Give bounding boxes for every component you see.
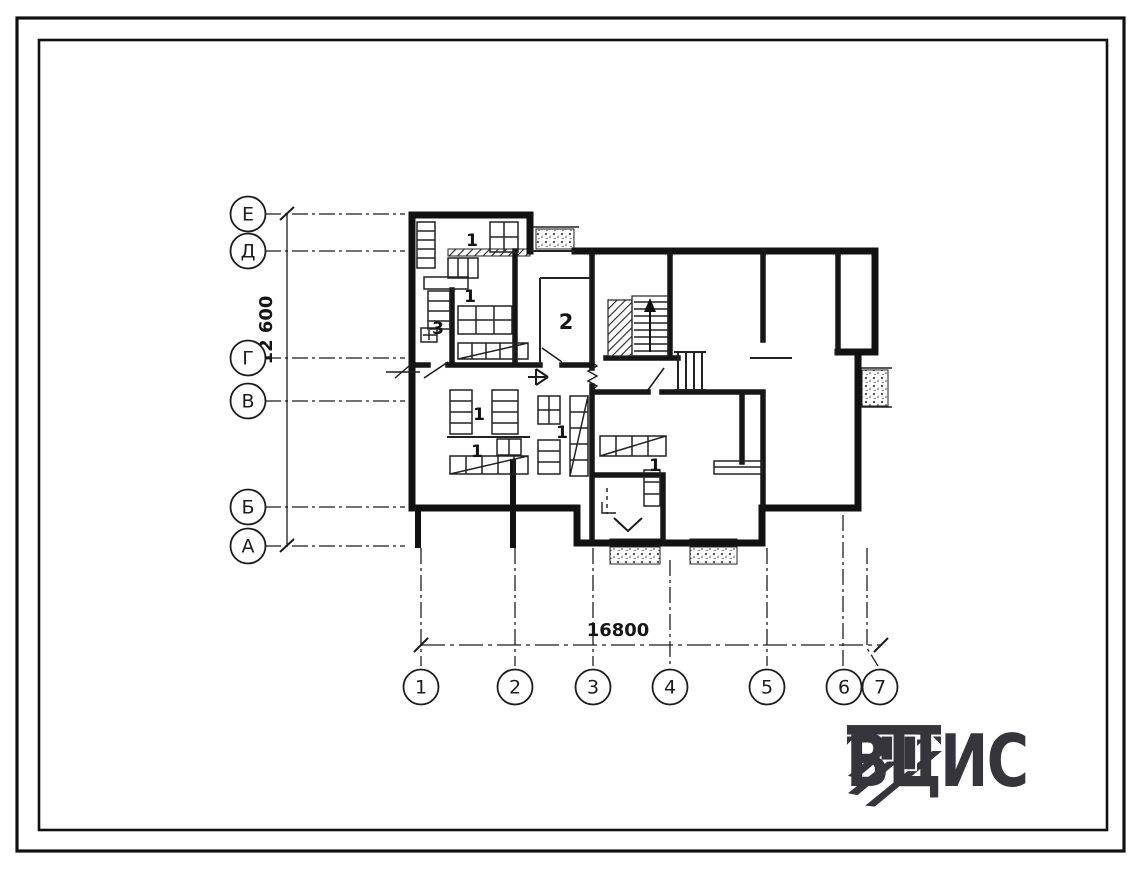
room-label-1: 1	[466, 231, 478, 251]
staircase	[608, 296, 706, 390]
col-axis-5: 5	[750, 548, 785, 705]
row-axis-Д: Д	[231, 234, 406, 269]
dim-horizontal: 16800	[587, 620, 650, 641]
svg-text:Д: Д	[241, 241, 256, 263]
svg-text:6: 6	[838, 677, 850, 699]
room-label-1: 1	[464, 287, 476, 307]
col-axis-1: 1	[404, 548, 439, 705]
svg-text:А: А	[242, 536, 255, 558]
svg-text:В: В	[241, 391, 254, 413]
svg-text:4: 4	[664, 677, 676, 699]
svg-text:Г: Г	[242, 348, 254, 370]
room-label-1: 1	[471, 442, 483, 462]
col-axis-4: 4	[653, 560, 688, 705]
entry-arrow-right	[528, 369, 548, 385]
room-label-1: 1	[649, 456, 661, 476]
col-axis-2: 2	[498, 548, 533, 705]
svg-text:3: 3	[587, 677, 599, 699]
row-axis-В: В	[231, 384, 406, 419]
col-axis-7: 7	[863, 548, 898, 705]
col-axis-6: 6	[827, 515, 862, 705]
logo-text: ВЦИС	[846, 716, 1027, 806]
svg-text:2: 2	[509, 677, 521, 699]
svg-text:Б: Б	[241, 497, 254, 519]
drawing-sheet: 12 60016800 ЕДГВБА 1234567 11321111 ВЦИС	[0, 0, 1139, 869]
room-label-1: 1	[473, 405, 485, 425]
inner-border	[39, 40, 1107, 830]
row-axis-bubbles: ЕДГВБА	[231, 197, 406, 564]
dimension-lines	[280, 207, 888, 652]
room-label-3: 3	[432, 319, 444, 339]
small-stair	[674, 352, 706, 390]
row-axis-А: А	[231, 529, 406, 564]
entry-arrow-down	[614, 518, 642, 531]
logo: ВЦИС	[846, 716, 1096, 816]
svg-text:Е: Е	[242, 204, 254, 226]
room-label-1: 1	[556, 423, 568, 443]
svg-text:7: 7	[874, 677, 886, 699]
svg-text:5: 5	[761, 677, 773, 699]
row-axis-Е: Е	[231, 197, 406, 232]
room-label-2: 2	[559, 310, 574, 334]
svg-text:1: 1	[415, 677, 427, 699]
row-axis-Б: Б	[231, 490, 406, 525]
row-axis-Г: Г	[231, 341, 406, 376]
door-symbols	[386, 348, 664, 531]
